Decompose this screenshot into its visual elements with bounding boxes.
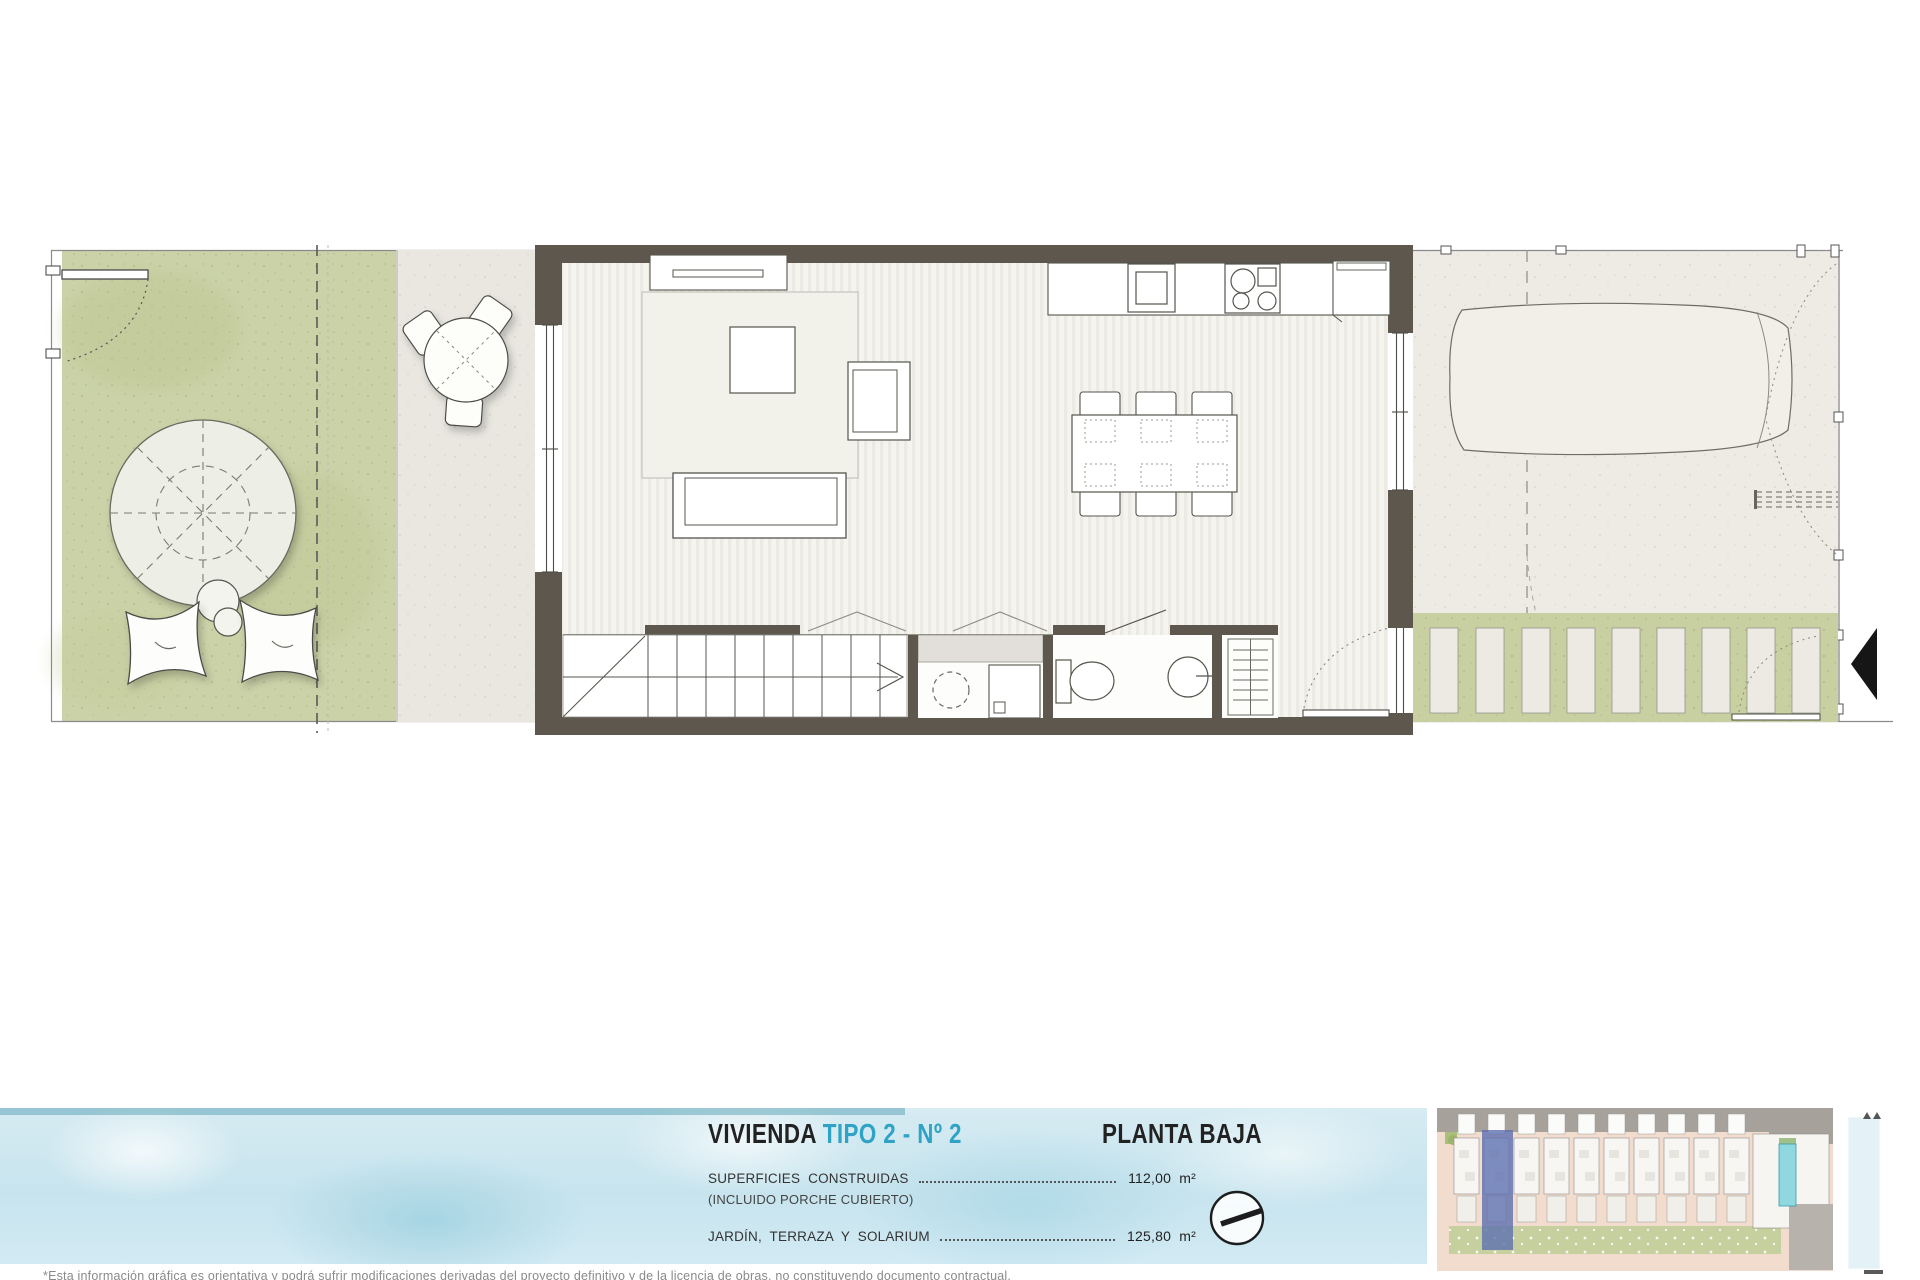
window-left — [542, 325, 558, 572]
glass-door-to-porch — [1397, 628, 1404, 713]
floor-plan-drawing — [0, 0, 1920, 1280]
built-surface-unit: m² — [1179, 1170, 1196, 1186]
tv-unit — [650, 255, 787, 290]
sofa — [673, 473, 846, 538]
staircase — [563, 635, 907, 717]
garden-surface-row: JARDÍN, TERRAZA Y SOLARIUM 125,80 m² — [708, 1228, 1196, 1244]
toilet-icon — [1056, 660, 1114, 703]
title-accent: TIPO 2 - Nº 2 — [823, 1118, 962, 1149]
title-prefix: VIVIENDA — [708, 1118, 823, 1149]
built-surface-sublabel: (INCLUIDO PORCHE CUBIERTO) — [708, 1192, 914, 1207]
pergola-band — [1413, 613, 1838, 722]
dotted-leader — [940, 1238, 1115, 1241]
adjacent-sheet-strip — [1848, 1117, 1880, 1269]
dining-chairs-bottom — [1080, 490, 1232, 516]
site-pool — [1779, 1144, 1796, 1206]
garden-surface-value: 125,80 — [1127, 1228, 1171, 1244]
tv-screen — [673, 270, 763, 277]
floor-label: PLANTA BAJA — [1086, 1118, 1262, 1150]
laundry-room — [918, 635, 1043, 718]
fridge — [1333, 261, 1390, 322]
dining-set — [1072, 392, 1237, 516]
window-right — [1392, 333, 1408, 490]
entry-arrow-icon — [1851, 628, 1877, 700]
dining-chairs-top — [1080, 392, 1232, 418]
driveway-area — [1413, 245, 1893, 722]
laundry-appliance — [989, 665, 1040, 718]
site-highlighted-unit — [1482, 1130, 1513, 1250]
laundry-counter — [918, 635, 1043, 662]
pergola-slats — [1430, 628, 1820, 713]
garden-surface-unit: m² — [1179, 1228, 1196, 1244]
side-strip-dash — [1864, 1270, 1883, 1274]
coffee-table — [730, 327, 795, 393]
round-table — [424, 318, 508, 402]
plan-sheet: VIVIENDA TIPO 2 - Nº 2 PLANTA BAJA SUPER… — [0, 0, 1920, 1280]
disclaimer-text: *Esta información gráfica es orientativa… — [43, 1269, 1543, 1280]
pedestrian-gate-leaf — [1732, 714, 1820, 720]
site-plan-thumbnail — [1437, 1108, 1833, 1271]
car-outline — [1450, 303, 1792, 454]
dotted-leader — [919, 1180, 1117, 1183]
side-strip-marks-icon — [1861, 1110, 1885, 1120]
built-surface-row: SUPERFICIES CONSTRUIDAS 112,00 m² — [708, 1170, 1196, 1186]
north-compass-icon — [1208, 1189, 1268, 1249]
towel-radiator — [1222, 635, 1278, 718]
terrace-area — [397, 250, 535, 722]
built-surface-value: 112,00 — [1128, 1170, 1171, 1186]
house — [535, 245, 1413, 735]
bathroom — [1053, 635, 1213, 718]
site-gray-block — [1789, 1204, 1833, 1270]
armchair — [848, 362, 910, 440]
kitchen-counter — [1048, 261, 1390, 322]
stair-wall — [645, 625, 800, 635]
garden-surface-label: JARDÍN, TERRAZA Y SOLARIUM — [708, 1229, 930, 1244]
dining-table — [1072, 415, 1237, 492]
built-surface-label: SUPERFICIES CONSTRUIDAS — [708, 1171, 909, 1186]
entrance-door-leaf — [1303, 710, 1389, 717]
